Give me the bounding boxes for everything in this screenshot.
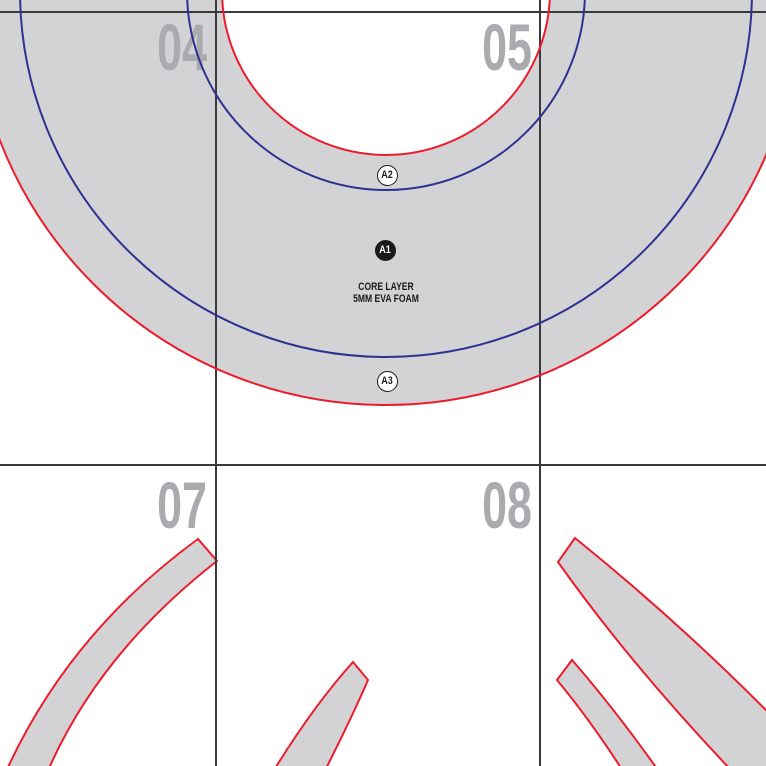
cut-line-inner: [222, 0, 550, 155]
pattern-canvas: 04 05 07 08 A2 A1 A3 CORE LAYER 5MM EVA …: [0, 0, 766, 766]
piece-note: CORE LAYER 5MM EVA FOAM: [308, 281, 464, 305]
mark-line-inner: [187, 0, 585, 190]
part-label-a1: A1: [375, 240, 396, 261]
piece-note-line1: CORE LAYER: [308, 281, 464, 293]
part-label-a3: A3: [377, 371, 398, 392]
part-label-a1-text: A1: [380, 245, 392, 256]
part-label-a2: A2: [377, 165, 398, 186]
arc-strip-piece-left: [0, 539, 217, 766]
part-label-a3-text: A3: [382, 376, 394, 387]
arc-strip-piece-middle: [262, 662, 368, 766]
piece-note-line2: 5MM EVA FOAM: [308, 293, 464, 305]
arc-strip-piece-right-large: [558, 538, 766, 766]
part-label-a2-text: A2: [382, 170, 394, 181]
cut-line-outer: [0, 0, 766, 405]
